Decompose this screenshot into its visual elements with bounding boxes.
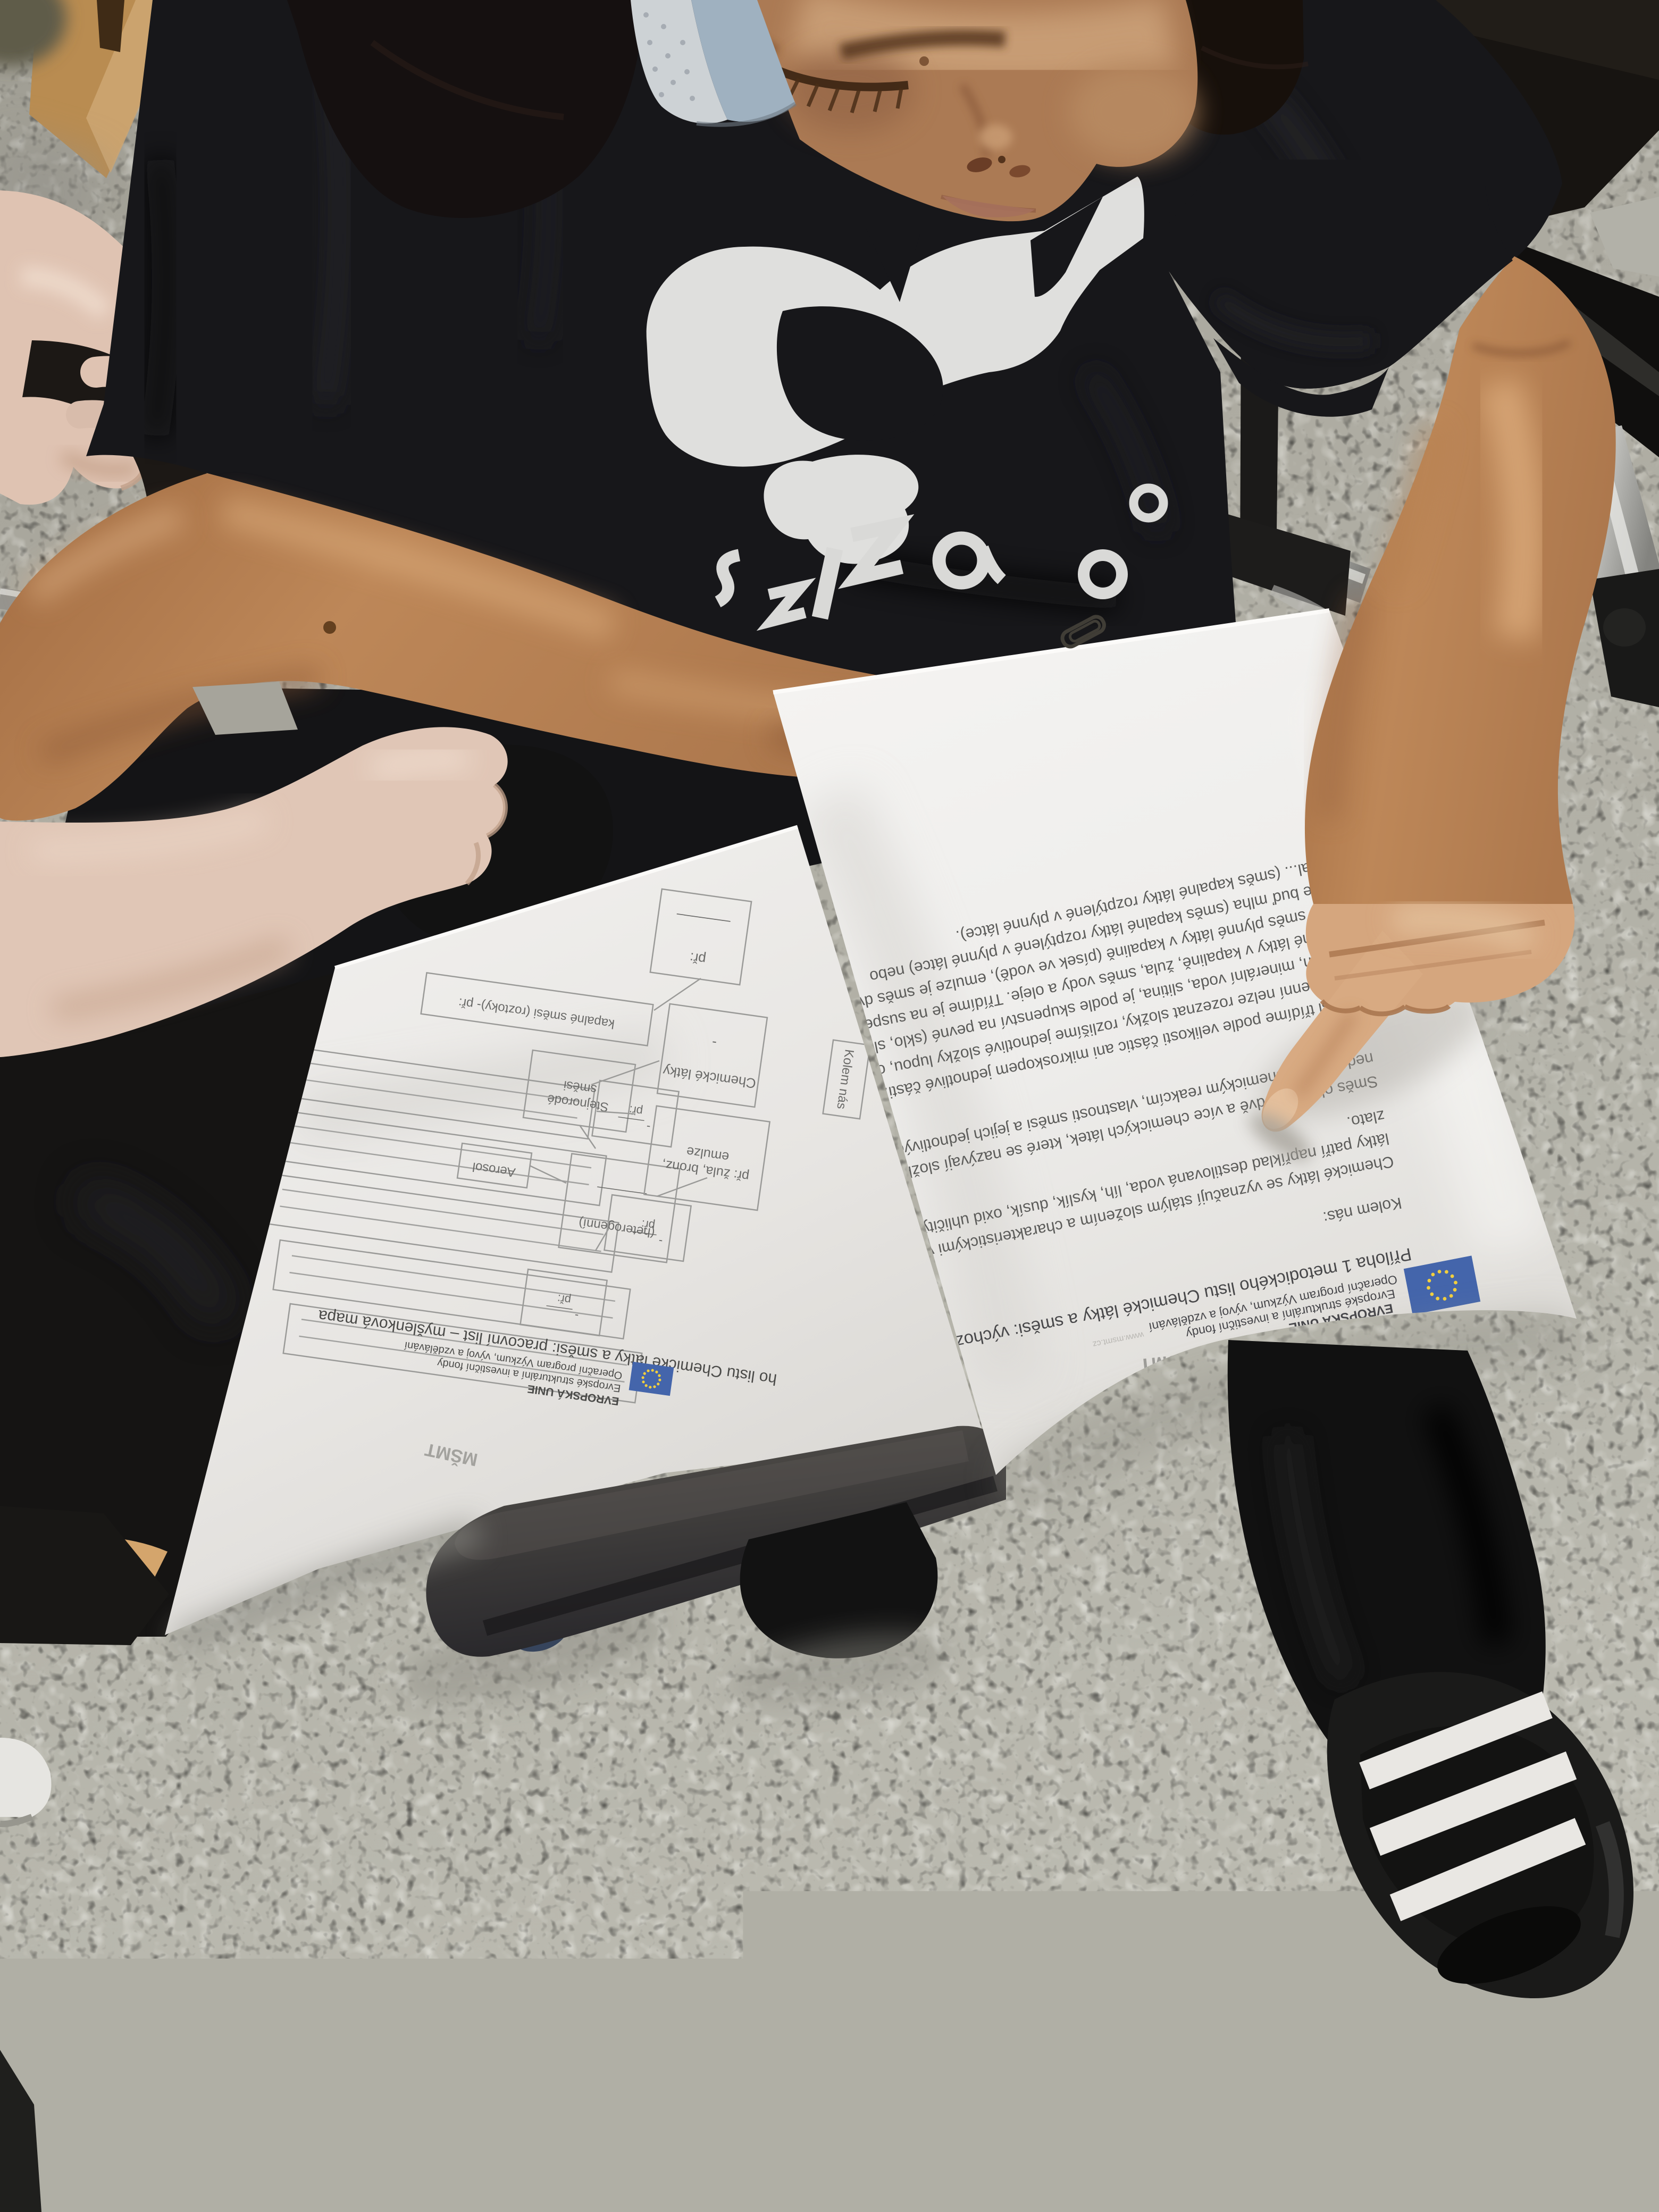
svg-text:př:: př: bbox=[640, 1218, 656, 1233]
svg-text:př:: př: bbox=[689, 950, 707, 968]
svg-text:př:: př: bbox=[628, 1103, 643, 1118]
svg-text:př:: př: bbox=[556, 1292, 572, 1307]
